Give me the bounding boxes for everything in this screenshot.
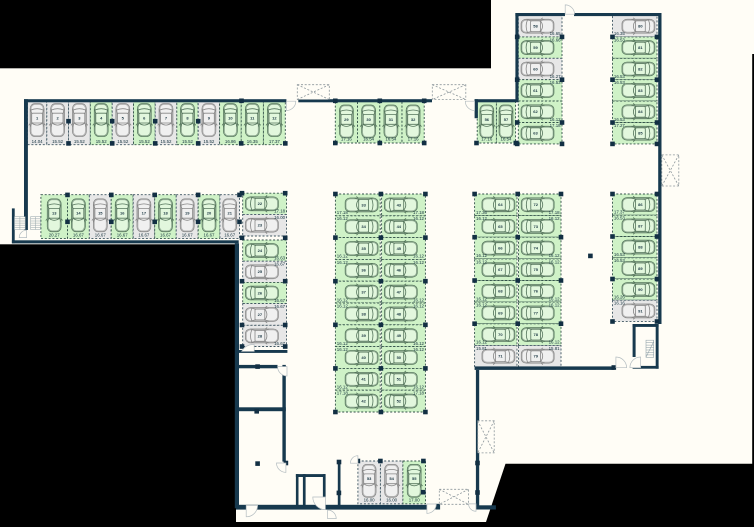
svg-text:16.67: 16.67 [160, 232, 172, 237]
svg-text:16.12: 16.12 [476, 303, 488, 308]
svg-text:38: 38 [361, 311, 366, 316]
svg-text:23: 23 [258, 223, 263, 228]
svg-text:16.35: 16.35 [614, 31, 626, 36]
svg-text:56: 56 [485, 117, 490, 122]
svg-text:17.36: 17.36 [476, 210, 488, 215]
svg-text:16.66: 16.66 [550, 37, 562, 42]
svg-text:16.12: 16.12 [337, 297, 349, 302]
svg-text:17.18: 17.18 [337, 210, 349, 215]
svg-text:90: 90 [638, 287, 643, 292]
svg-text:16.12: 16.12 [476, 253, 488, 258]
svg-text:16.12: 16.12 [337, 260, 349, 265]
svg-text:58: 58 [533, 24, 538, 29]
svg-text:51: 51 [397, 377, 402, 382]
svg-text:16.53: 16.53 [614, 37, 626, 42]
svg-text:16.12: 16.12 [413, 297, 425, 302]
svg-text:65: 65 [498, 224, 503, 229]
svg-text:32: 32 [411, 117, 416, 122]
svg-text:62: 62 [533, 109, 538, 114]
svg-text:83: 83 [638, 88, 643, 93]
svg-text:16.12: 16.12 [476, 259, 488, 264]
svg-text:86: 86 [638, 202, 643, 207]
svg-text:16.67: 16.67 [274, 304, 286, 309]
svg-text:21: 21 [227, 211, 232, 216]
svg-text:31: 31 [389, 117, 394, 122]
svg-text:20: 20 [207, 211, 212, 216]
svg-text:12: 12 [272, 116, 277, 121]
svg-text:16.54: 16.54 [385, 137, 397, 142]
svg-text:34: 34 [361, 224, 366, 229]
svg-text:73: 73 [533, 224, 538, 229]
svg-text:29: 29 [344, 117, 349, 122]
svg-text:17.18: 17.18 [413, 210, 425, 215]
svg-text:16.53: 16.53 [614, 216, 626, 221]
svg-text:15.81: 15.81 [476, 346, 488, 351]
svg-text:16.12: 16.12 [476, 216, 488, 221]
svg-text:66: 66 [498, 246, 503, 251]
svg-text:68: 68 [498, 289, 503, 294]
svg-text:16.65: 16.65 [550, 31, 562, 36]
svg-text:17.00: 17.00 [409, 498, 421, 503]
svg-text:82: 82 [638, 66, 643, 71]
svg-text:16.12: 16.12 [337, 341, 349, 346]
svg-text:16.12: 16.12 [476, 340, 488, 345]
svg-text:15.52: 15.52 [74, 139, 86, 144]
svg-text:17.37: 17.37 [614, 210, 626, 215]
svg-text:16.53: 16.53 [614, 258, 626, 263]
svg-text:47: 47 [397, 290, 402, 295]
svg-text:44: 44 [397, 224, 402, 229]
svg-text:89: 89 [638, 266, 643, 271]
svg-text:16.12: 16.12 [337, 254, 349, 259]
svg-text:14: 14 [76, 211, 81, 216]
svg-text:16.67: 16.67 [182, 232, 194, 237]
svg-text:16.67: 16.67 [117, 232, 129, 237]
svg-text:40: 40 [361, 355, 366, 360]
svg-text:16.27: 16.27 [550, 74, 562, 79]
svg-text:16.54: 16.54 [363, 137, 375, 142]
svg-text:78: 78 [533, 332, 538, 337]
svg-text:36: 36 [361, 268, 366, 273]
svg-text:16.67: 16.67 [274, 262, 286, 267]
svg-text:16.12: 16.12 [476, 296, 488, 301]
svg-text:15.52: 15.52 [52, 139, 64, 144]
svg-text:16.12: 16.12 [413, 216, 425, 221]
svg-text:17.18: 17.18 [413, 391, 425, 396]
svg-text:53: 53 [367, 476, 372, 481]
svg-text:74: 74 [533, 246, 538, 251]
svg-text:24: 24 [258, 248, 263, 253]
svg-text:60: 60 [533, 66, 538, 71]
svg-text:18: 18 [163, 211, 168, 216]
svg-text:16.12: 16.12 [413, 385, 425, 390]
svg-text:16.12: 16.12 [337, 303, 349, 308]
svg-text:91: 91 [638, 308, 643, 313]
svg-text:16.67: 16.67 [224, 232, 236, 237]
svg-text:16.12: 16.12 [549, 253, 561, 258]
svg-text:16.00: 16.00 [364, 498, 376, 503]
svg-text:17: 17 [142, 211, 147, 216]
svg-text:16.12: 16.12 [549, 303, 561, 308]
svg-text:77: 77 [533, 310, 538, 315]
svg-text:16.67: 16.67 [274, 341, 286, 346]
svg-text:15.81: 15.81 [549, 346, 561, 351]
svg-text:27: 27 [258, 312, 263, 317]
svg-text:61: 61 [533, 88, 538, 93]
svg-text:15.52: 15.52 [139, 139, 151, 144]
svg-text:17.18: 17.18 [550, 123, 562, 128]
svg-text:76: 76 [533, 289, 538, 294]
svg-text:16: 16 [120, 211, 125, 216]
svg-text:28: 28 [258, 333, 263, 338]
svg-text:16.67: 16.67 [138, 232, 150, 237]
svg-text:16.12: 16.12 [413, 260, 425, 265]
svg-text:10: 10 [228, 116, 233, 121]
svg-text:19: 19 [185, 211, 190, 216]
svg-text:16.54: 16.54 [501, 137, 513, 142]
svg-text:45: 45 [397, 246, 402, 251]
svg-text:16.00: 16.00 [386, 498, 398, 503]
svg-text:87: 87 [638, 223, 643, 228]
svg-text:43: 43 [397, 202, 402, 207]
svg-text:33: 33 [361, 202, 366, 207]
svg-text:64: 64 [498, 202, 503, 207]
svg-text:16.12: 16.12 [549, 216, 561, 221]
svg-text:50: 50 [397, 355, 402, 360]
svg-text:49: 49 [397, 333, 402, 338]
svg-text:15.52: 15.52 [96, 139, 108, 144]
svg-text:52: 52 [397, 399, 402, 404]
svg-text:72: 72 [533, 202, 538, 207]
svg-text:81: 81 [638, 45, 643, 50]
svg-text:54: 54 [389, 476, 394, 481]
svg-text:80: 80 [638, 24, 643, 29]
svg-text:16.63: 16.63 [274, 256, 286, 261]
svg-text:16.12: 16.12 [337, 385, 349, 390]
svg-text:42: 42 [361, 399, 366, 404]
svg-text:16.12: 16.12 [337, 216, 349, 221]
svg-text:15.52: 15.52 [182, 139, 194, 144]
svg-text:17.16: 17.16 [481, 137, 493, 142]
svg-text:26: 26 [258, 290, 263, 295]
svg-text:16.53: 16.53 [614, 80, 626, 85]
svg-text:16.12: 16.12 [413, 347, 425, 352]
svg-text:16.53: 16.53 [614, 252, 626, 257]
svg-text:75: 75 [533, 267, 538, 272]
svg-text:16.86: 16.86 [225, 139, 237, 144]
svg-text:15.52: 15.52 [203, 139, 215, 144]
svg-text:16.12: 16.12 [550, 117, 562, 122]
svg-text:84: 84 [638, 109, 643, 114]
svg-text:15.52: 15.52 [117, 139, 129, 144]
svg-text:67: 67 [498, 267, 503, 272]
svg-text:35: 35 [361, 246, 366, 251]
svg-text:16.67: 16.67 [73, 232, 85, 237]
svg-text:20.27: 20.27 [49, 232, 61, 237]
svg-text:17.37: 17.37 [269, 139, 281, 144]
svg-text:17.27: 17.27 [614, 123, 626, 128]
svg-text:79: 79 [533, 354, 538, 359]
svg-text:59: 59 [533, 45, 538, 50]
svg-text:39: 39 [361, 333, 366, 338]
svg-text:14.04: 14.04 [32, 139, 44, 144]
svg-text:17.16: 17.16 [341, 137, 353, 142]
svg-text:48: 48 [397, 311, 402, 316]
svg-text:16.16: 16.16 [614, 301, 626, 306]
svg-text:17.16: 17.16 [408, 137, 420, 142]
svg-text:16.26: 16.26 [614, 295, 626, 300]
svg-text:16.12: 16.12 [549, 296, 561, 301]
svg-text:57: 57 [504, 117, 509, 122]
svg-text:15: 15 [98, 211, 103, 216]
svg-text:16.67: 16.67 [204, 232, 216, 237]
svg-text:63: 63 [533, 131, 538, 136]
svg-text:71: 71 [498, 354, 503, 359]
svg-text:16.12: 16.12 [549, 259, 561, 264]
svg-text:17.18: 17.18 [549, 210, 561, 215]
svg-text:16.67: 16.67 [274, 298, 286, 303]
svg-text:16.00: 16.00 [274, 215, 286, 220]
svg-text:13: 13 [52, 211, 57, 216]
svg-text:22: 22 [258, 201, 263, 206]
svg-text:37: 37 [361, 290, 366, 295]
svg-text:41: 41 [361, 377, 366, 382]
svg-text:17.18: 17.18 [274, 209, 286, 214]
svg-text:25: 25 [258, 269, 263, 274]
svg-text:16.12: 16.12 [413, 254, 425, 259]
svg-text:55: 55 [412, 476, 417, 481]
svg-text:16.12: 16.12 [549, 340, 561, 345]
svg-text:70: 70 [498, 332, 503, 337]
svg-text:16.53: 16.53 [550, 80, 562, 85]
svg-text:15.52: 15.52 [161, 139, 173, 144]
svg-text:17.18: 17.18 [337, 391, 349, 396]
svg-text:16.35: 16.35 [247, 139, 259, 144]
svg-text:30: 30 [366, 117, 371, 122]
svg-text:16.53: 16.53 [614, 117, 626, 122]
svg-text:85: 85 [638, 131, 643, 136]
svg-text:16.12: 16.12 [413, 303, 425, 308]
svg-text:88: 88 [638, 245, 643, 250]
svg-text:69: 69 [498, 310, 503, 315]
svg-text:16.12: 16.12 [337, 347, 349, 352]
svg-text:16.67: 16.67 [95, 232, 107, 237]
svg-text:16.53: 16.53 [614, 74, 626, 79]
svg-text:16.12: 16.12 [413, 341, 425, 346]
svg-text:46: 46 [397, 268, 402, 273]
